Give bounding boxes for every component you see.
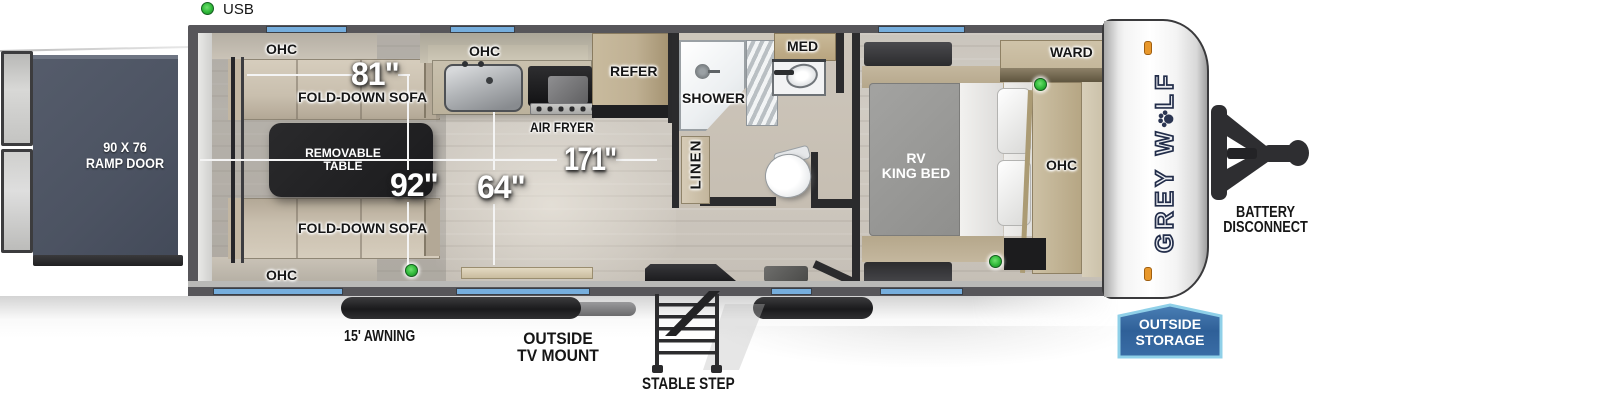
svg-text:OUTSIDE: OUTSIDE xyxy=(1139,316,1201,332)
svg-text:STORAGE: STORAGE xyxy=(1136,332,1205,348)
